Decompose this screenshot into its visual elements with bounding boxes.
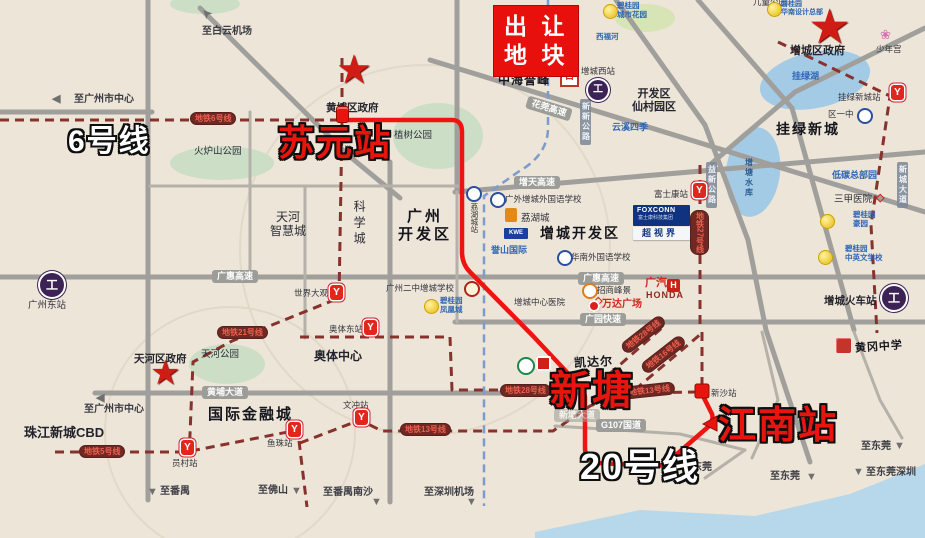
icon-gwzc-school-badge	[490, 192, 506, 208]
label-sanjia-hospital: 三甲医院	[834, 194, 872, 205]
label-tianhe-park: 天河公园	[201, 349, 239, 360]
label-aoti-center: 奥体中心	[314, 349, 362, 363]
label-lihucheng-station: 荔湖城站	[469, 203, 478, 233]
icon-quyizhong-badge	[857, 108, 873, 124]
logo-bgy-fhc-icon	[424, 299, 439, 314]
logo-red-square-icon	[536, 356, 551, 371]
label-gq: 广汽	[645, 277, 667, 290]
logo-bgy-haoyuan-icon	[820, 214, 835, 229]
logo-zhaoshang-icon	[582, 283, 598, 299]
label-huanggang-school: 黄冈中学	[855, 339, 904, 355]
label-kexuecheng: 科学城	[352, 200, 366, 248]
icon-yuzhu-metro: Y	[288, 422, 301, 437]
label-foxconn-brand: FOXCONN	[637, 207, 676, 215]
label-huolushan-park: 火炉山公园	[194, 146, 242, 157]
label-yuzhu-station: 鱼珠站	[267, 438, 293, 448]
arrow-foshan: ▼	[291, 485, 302, 498]
zengcheng-metro-map: ➤至白云机场◀至广州市中心地铁6号线6号线★黄埔区政府苏元站植树公园火炉山公园出…	[0, 0, 925, 538]
arrow-dongguan-shenzhen: ▼	[853, 466, 864, 479]
icon-lihucheng-station-badge	[466, 186, 482, 202]
arrow-gz-center-top: ◀	[52, 93, 60, 106]
metro-line6-label: 地铁6号线	[190, 112, 236, 125]
label-guanghui-hwy-west: 广惠高速	[212, 270, 258, 283]
label-gz-kaifaqu: 广州 开发区	[398, 208, 452, 243]
label-zc-west-station: 增城西站	[581, 66, 615, 76]
label-yunxi-siji: 云溪四季	[612, 122, 648, 133]
pin-suyuan-icon	[336, 106, 349, 123]
label-gwzc-school: 广外增城外国语学校	[505, 194, 582, 204]
label-guangyuan-exp: 广园快速	[580, 313, 626, 326]
arrow-baiyun-airport: ➤	[197, 4, 216, 23]
logo-bgy-city-garden-icon	[603, 4, 618, 19]
label-ditan-hq: 低碳总部园	[832, 170, 877, 181]
label-world-scenery: 世界大观	[294, 288, 328, 298]
dest-foshan: 至佛山	[258, 485, 288, 497]
label-zc-gov: 增城区政府	[790, 45, 845, 58]
icon-zc-railway: 工	[882, 286, 906, 310]
label-bgy-school: 碧桂园 中英文学校	[845, 245, 883, 263]
icon-wenchong-metro: Y	[355, 410, 368, 425]
label-bgy-hq: 碧桂园 华南设计总部	[781, 1, 823, 18]
label-yixin-road: 益新公路	[706, 162, 717, 208]
label-honda: HONDA	[646, 290, 684, 301]
icon-yuancun-metro: Y	[181, 440, 194, 455]
label-xinsha-station: 新沙站	[711, 388, 737, 398]
label-gualv-newtown: 挂绿新城	[776, 122, 840, 139]
label-xinxin-road: 新新公路	[580, 99, 591, 145]
label-suyuan-big: 苏元站	[278, 122, 392, 164]
label-zc-hospital: 增城中心医院	[514, 297, 565, 307]
label-bgy-fenghuangcheng: 碧桂园 凤凰城	[440, 297, 463, 315]
dest-panyu-nansha: 至番禺南沙	[323, 487, 373, 499]
label-shaoniangong: 少年宫	[876, 44, 902, 54]
label-foxconn-station: 富士康站	[654, 189, 688, 199]
arrow-dongguan-3: ▼	[894, 440, 905, 453]
arrow-panyu-nansha: ▼	[371, 496, 382, 509]
icon-gualv-newtown-metro: Y	[891, 85, 904, 100]
dest-dongguan-shenzhen: 至东莞深圳	[866, 467, 916, 479]
dest-gz-center-bottom: 至广州市中心	[84, 404, 144, 416]
label-kaifaqu-xiancun: 开发区 仙村园区	[632, 88, 676, 114]
metro-line21-label: 地铁21号线	[217, 326, 268, 339]
icon-gz-east-rail: 工	[40, 273, 64, 297]
label-zjnc-cbd: 珠江新城CBD	[24, 425, 104, 440]
icon-aoti-east-metro: Y	[364, 320, 377, 335]
label-zc-kaifaqu: 增城开发区	[540, 226, 620, 243]
label-xifu-river: 西福河	[596, 33, 619, 42]
label-xintang-big: 新塘	[550, 368, 634, 415]
label-line6-big: 6号线	[68, 124, 151, 159]
plot-box: 出 让 地 块	[494, 6, 578, 76]
logo-kwe-icon: KWE	[504, 228, 528, 239]
label-zhishu-park: 植树公园	[394, 130, 432, 141]
arrow-dongguan-2: ▼	[806, 471, 817, 484]
icon-world-scenery-metro: Y	[330, 285, 343, 300]
arrow-panyu: ▼	[147, 486, 158, 499]
label-wenchong-station: 文冲站	[343, 400, 369, 410]
label-gz2z-school: 广州二中增城学校	[386, 283, 454, 293]
label-yuancun-station: 员村站	[172, 458, 198, 468]
metro-line13-label-west: 地铁13号线	[400, 423, 451, 436]
label-huangpu-gov: 黄埔区政府	[326, 102, 379, 114]
logo-orange-icon	[505, 208, 517, 222]
label-zengtian-hwy: 增天高速	[514, 176, 560, 189]
star-tianhe-gov-icon: ★	[150, 356, 180, 390]
dest-gz-center-top: 至广州市中心	[74, 94, 134, 106]
label-tianhe-smart-city: 天河 智慧城	[270, 210, 306, 238]
icon-zc-west-rail: 工	[588, 80, 608, 100]
label-zengtang-reservoir: 增塘水库	[744, 158, 753, 198]
label-gualv-newtown-station: 挂绿新城站	[838, 92, 881, 102]
label-huanan-school: 华南外国语学校	[571, 252, 631, 262]
logo-green-icon	[517, 357, 535, 375]
label-quyizhong: 区一中	[828, 109, 854, 119]
label-bgy-haoyuan: 碧桂园 豪园	[853, 211, 876, 229]
label-gualv-lake: 挂绿湖	[792, 71, 819, 82]
icon-sanjia-diamond: ◇	[876, 192, 884, 205]
dest-panyu: 至番禺	[160, 486, 190, 498]
label-intl-finance-city: 国际金融城	[208, 406, 293, 424]
icon-foxconn-metro: Y	[693, 183, 706, 198]
label-aoti-east-station: 奥体东站	[329, 324, 363, 334]
label-huamo-hwy: 花莞高速	[525, 96, 573, 122]
metro-line5-label: 地铁5号线	[79, 445, 125, 458]
label-huangpu-avenue: 黄埔大道	[202, 386, 248, 399]
label-jiangnan-big: 江南站	[718, 404, 838, 449]
label-gz-east-station: 广州东站	[28, 300, 66, 311]
metro-line28-label-west: 地铁28号线	[500, 384, 551, 397]
dest-baiyun-airport: 至白云机场	[202, 26, 252, 38]
logo-bgy-hq-icon	[767, 2, 782, 17]
label-bgy-city-garden: 碧桂园 城市花园	[617, 2, 647, 20]
logo-bgy-school-icon	[818, 250, 833, 265]
label-g107: G107国道	[596, 419, 646, 432]
map-labels-layer: ➤至白云机场◀至广州市中心地铁6号线6号线★黄埔区政府苏元站植树公园火炉山公园出…	[0, 0, 925, 538]
logo-huanggang-icon	[836, 338, 851, 353]
label-xincheng-avenue: 新城大道	[897, 162, 908, 208]
dest-dongguan-3: 至东莞	[861, 441, 891, 453]
metro-line27-label: 地铁27号线	[690, 210, 709, 255]
label-wanda: 万达广场	[602, 299, 642, 311]
dest-dongguan-2: 至东莞	[770, 471, 800, 483]
logo-wanda-icon	[588, 300, 600, 312]
star-huangpu-gov-icon: ★	[336, 50, 372, 90]
label-guanghui-hwy-east: 广惠高速	[578, 272, 624, 285]
label-chaoshijie: 超视界	[642, 228, 678, 239]
arrow-sz-airport: ▼	[466, 496, 477, 509]
label-lihucheng: 荔湖城	[521, 213, 550, 224]
label-foxconn-group: 富士康科技集团	[638, 216, 673, 222]
label-zhaoshang: 招商峰景	[597, 285, 631, 295]
icon-gz2z-school-badge	[464, 281, 480, 297]
label-zc-railway-station: 增城火车站	[824, 295, 877, 307]
icon-shaoniangong-flower: ❀	[880, 27, 891, 42]
label-line20-big: 20号线	[580, 446, 700, 488]
label-yushan-intl: 誉山国际	[491, 245, 527, 256]
